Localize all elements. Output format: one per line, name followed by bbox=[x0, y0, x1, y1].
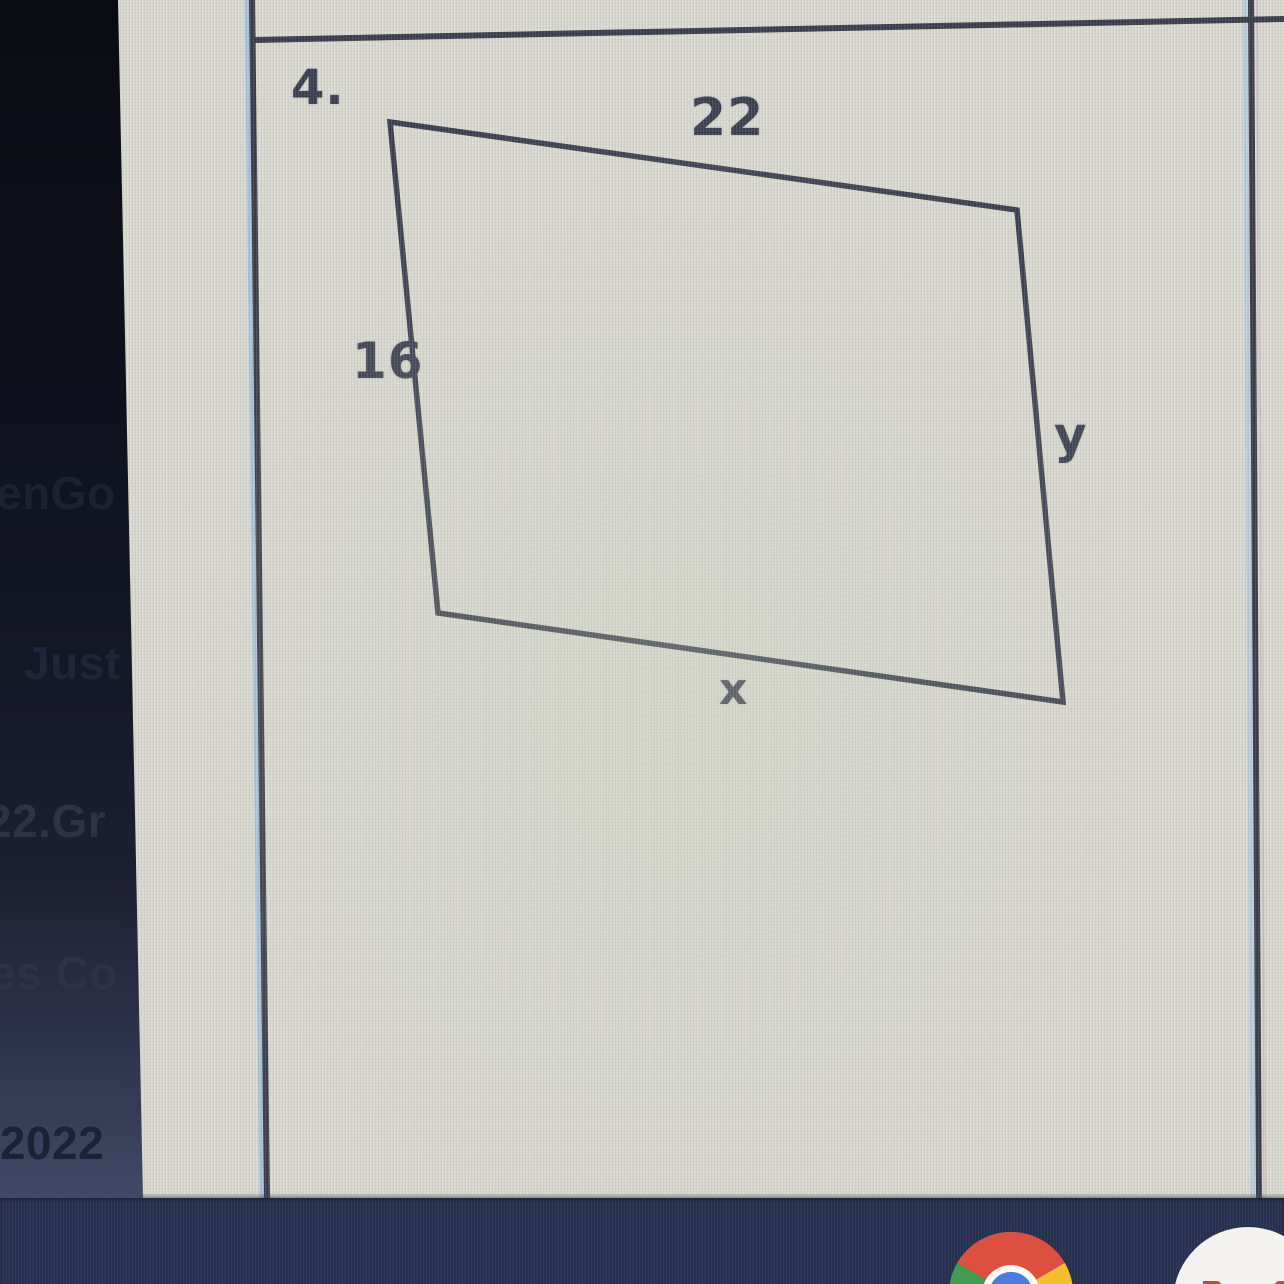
side-label-left: 16 bbox=[352, 332, 424, 390]
sidebar-item-fragment[interactable]: -2022 bbox=[0, 1116, 104, 1170]
sidebar-item-fragment[interactable]: 22.Gr bbox=[0, 794, 106, 848]
sidebar-item-fragment[interactable]: Just bbox=[24, 636, 121, 690]
worksheet-page: 4. 22 16 y x bbox=[0, 0, 1284, 1198]
gmail-icon-art bbox=[1173, 1227, 1284, 1284]
side-label-top: 22 bbox=[690, 88, 764, 148]
taskbar bbox=[0, 1198, 1284, 1284]
quadrilateral-figure bbox=[390, 122, 1063, 702]
sidebar-item-fragment[interactable]: enGo bbox=[0, 466, 116, 520]
gmail-icon[interactable] bbox=[1173, 1227, 1284, 1284]
side-label-bottom: x bbox=[719, 664, 748, 715]
app-window: { "worksheet": { "problem_number": "4.",… bbox=[0, 0, 1284, 1284]
taskbar-texture bbox=[0, 1198, 1284, 1284]
problem-number: 4. bbox=[291, 60, 345, 116]
worksheet-table-lines bbox=[0, 0, 1284, 1198]
table-border-top bbox=[252, 19, 1284, 40]
side-label-right: y bbox=[1054, 406, 1088, 464]
sidebar-item-fragment[interactable]: es Co bbox=[0, 946, 118, 1000]
chrome-icon-art bbox=[942, 1225, 1080, 1284]
chrome-icon[interactable] bbox=[942, 1225, 1080, 1284]
